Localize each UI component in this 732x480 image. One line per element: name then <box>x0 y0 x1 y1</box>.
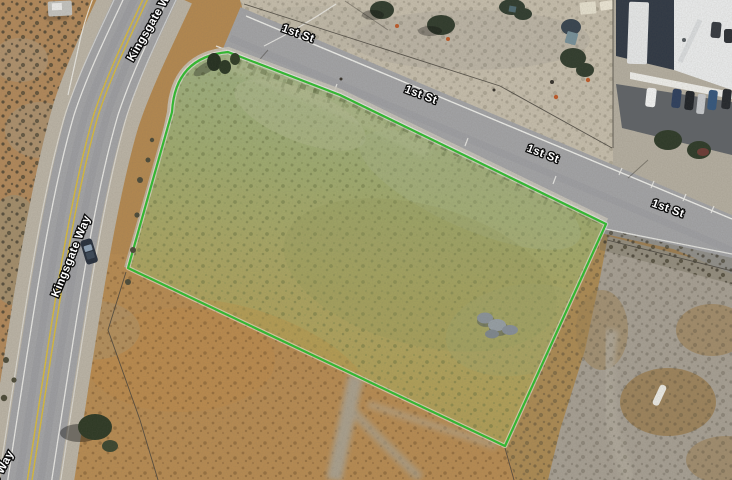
grain-overlay <box>0 0 732 480</box>
map-canvas: Kingsgate WayKingsgate WayKingsgate Way1… <box>0 0 732 480</box>
aerial-map[interactable]: Kingsgate WayKingsgate WayKingsgate Way1… <box>0 0 732 480</box>
